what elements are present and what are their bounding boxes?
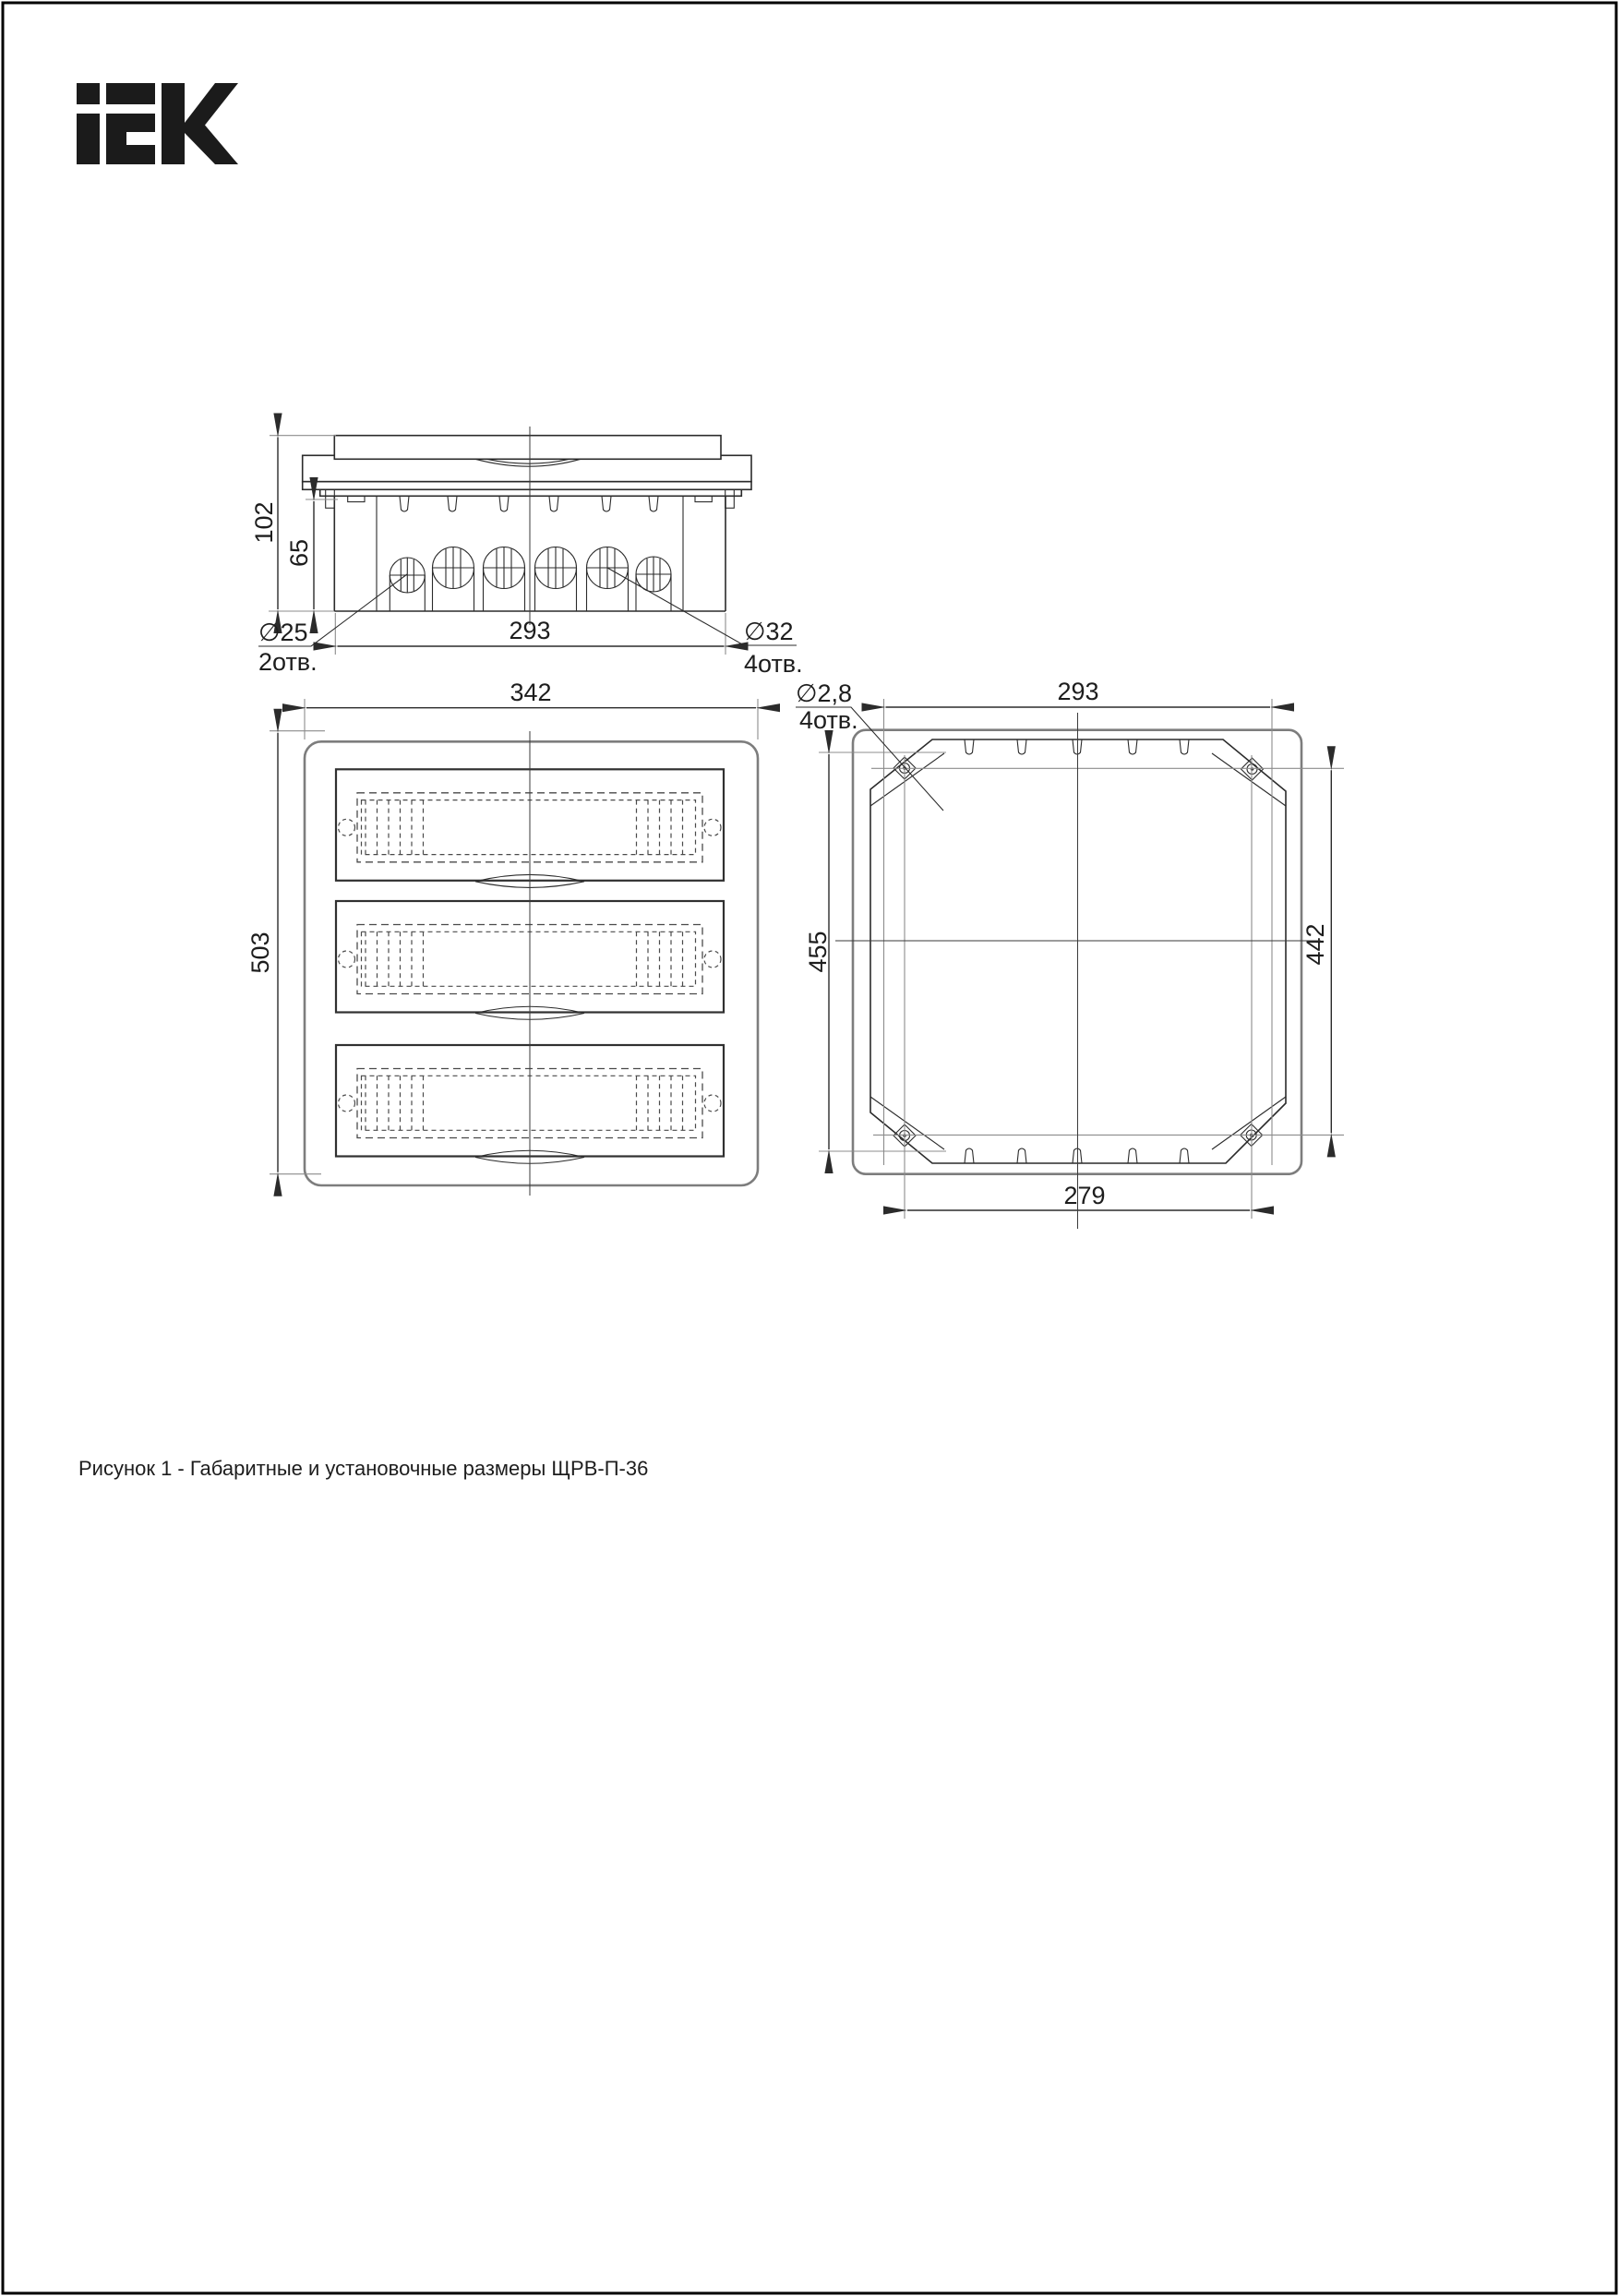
side-strip	[320, 489, 742, 496]
callout-d32-count: 4отв.	[744, 650, 803, 678]
side-knockouts	[390, 547, 671, 612]
technical-drawing-canvas: 102 65 293 ∅25 2отв. ∅32 4отв.	[0, 0, 1619, 2296]
callout-d25-count: 2отв.	[258, 648, 318, 676]
rear-mounting-holes	[893, 757, 1264, 1147]
page-border	[3, 3, 1616, 2293]
side-frame-band	[303, 482, 751, 490]
figure-caption: Рисунок 1 - Габаритные и установочные ра…	[78, 1457, 648, 1480]
rear-clips	[965, 739, 1189, 1163]
document-page: 102 65 293 ∅25 2отв. ∅32 4отв.	[0, 0, 1619, 2296]
side-tab-left	[348, 496, 365, 501]
dim-text-342: 342	[510, 679, 551, 706]
callout-d32: ∅32	[744, 618, 794, 645]
callout-d25: ∅25	[258, 619, 308, 646]
rear-view: 293 455 442 279 ∅2,8 4отв.	[796, 678, 1344, 1229]
front-view: 342 503	[246, 679, 758, 1196]
dim-text-102: 102	[250, 501, 278, 543]
dim-text-503: 503	[246, 932, 274, 973]
side-tab-right	[695, 496, 712, 501]
iek-logo	[77, 83, 238, 164]
dim-text-279: 279	[1063, 1182, 1105, 1209]
side-view: 102 65 293 ∅25 2отв. ∅32 4отв.	[250, 427, 803, 678]
rear-extension-lines	[819, 699, 1344, 1219]
dim-text-442: 442	[1301, 923, 1329, 965]
dim-text-455: 455	[804, 931, 832, 972]
callout-d28: ∅2,8	[796, 679, 852, 707]
dim-text-65: 65	[285, 539, 313, 567]
callout-d28-count: 4отв.	[799, 706, 858, 734]
side-lid	[334, 436, 721, 460]
side-clips	[400, 497, 658, 512]
dim-text-293-rear: 293	[1057, 678, 1098, 705]
